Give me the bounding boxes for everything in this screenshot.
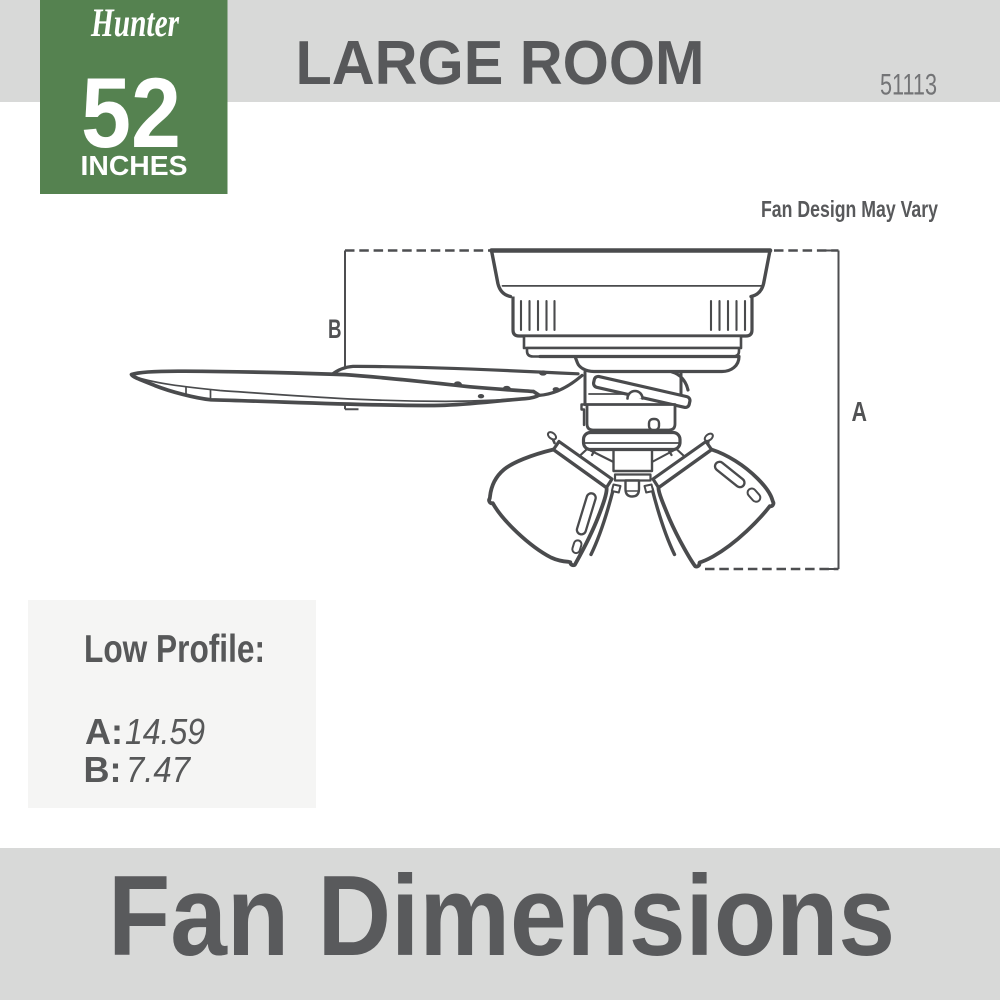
svg-text:Hunter: Hunter — [90, 0, 179, 45]
svg-text:LARGE ROOM: LARGE ROOM — [296, 29, 705, 98]
svg-text:B:: B: — [84, 749, 122, 790]
svg-text:A:: A: — [85, 711, 123, 752]
svg-text:INCHES: INCHES — [81, 150, 188, 181]
svg-text:A: A — [852, 396, 868, 427]
svg-text:7.47: 7.47 — [126, 749, 192, 790]
svg-text:Fan Dimensions: Fan Dimensions — [108, 853, 895, 980]
svg-text:14.59: 14.59 — [125, 711, 205, 752]
svg-text:Fan Design May Vary: Fan Design May Vary — [761, 196, 938, 222]
svg-text:Low Profile:: Low Profile: — [84, 628, 265, 671]
svg-text:51113: 51113 — [880, 69, 937, 102]
svg-text:B: B — [328, 314, 342, 344]
